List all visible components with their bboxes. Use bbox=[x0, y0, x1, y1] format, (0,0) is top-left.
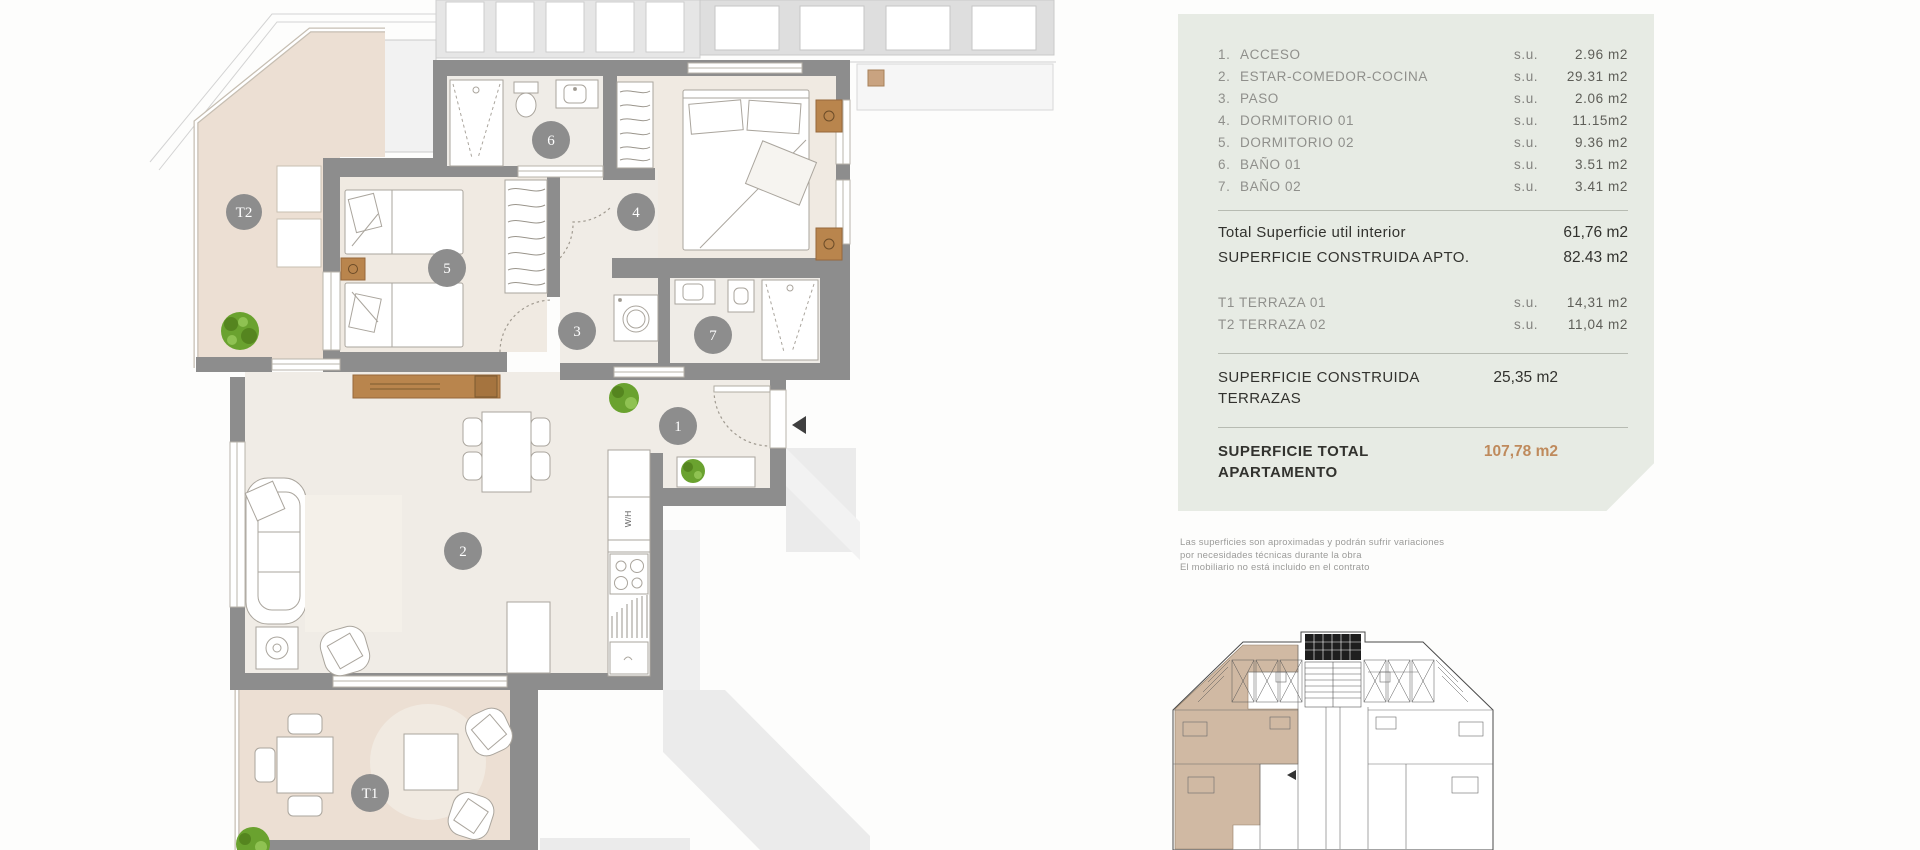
room-label: DORMITORIO 02 bbox=[1240, 135, 1514, 150]
total-util-value: 61,76 m2 bbox=[1518, 224, 1628, 242]
single-bed bbox=[345, 283, 463, 347]
plant bbox=[681, 459, 705, 483]
svg-text:3: 3 bbox=[573, 324, 581, 340]
room-area-row: 2. ESTAR-COMEDOR-COCINA s.u. 29.31 m2 bbox=[1218, 69, 1628, 91]
panel-divider bbox=[1218, 353, 1628, 354]
svg-text:4: 4 bbox=[632, 205, 640, 221]
room-number: 6. bbox=[1218, 157, 1240, 172]
disclaimer-text: Las superficies son aproximadas y podrán… bbox=[1180, 537, 1444, 575]
room-number: 4. bbox=[1218, 113, 1240, 128]
floorplan-sheet: { "panel": { "rooms": [ {"num":"1.","lab… bbox=[0, 0, 1920, 850]
svg-text:2: 2 bbox=[459, 544, 467, 560]
total-apartamento-value: 107,78 m2 bbox=[1448, 443, 1558, 461]
room-marker-t1: T1 bbox=[351, 774, 389, 812]
room-area-value: 2.06 m2 bbox=[1548, 91, 1628, 106]
disclaimer-line: por necesidades técnicas durante la obra bbox=[1180, 550, 1444, 563]
construida-terrazas-row: SUPERFICIE CONSTRUIDA TERRAZAS 25,35 m2 bbox=[1218, 367, 1628, 409]
room-area-row: 5. DORMITORIO 02 s.u. 9.36 m2 bbox=[1218, 135, 1628, 157]
construida-apto-value: 82.43 m2 bbox=[1518, 249, 1628, 267]
panel-divider bbox=[1218, 210, 1628, 211]
room-marker-7: 7 bbox=[694, 316, 732, 354]
keyplan-stairs bbox=[1305, 662, 1361, 707]
room-area-row: 6. BAÑO 01 s.u. 3.51 m2 bbox=[1218, 157, 1628, 179]
dining-table bbox=[463, 412, 550, 492]
room-label: ESTAR-COMEDOR-COCINA bbox=[1240, 69, 1514, 84]
kitchen-counter bbox=[608, 450, 650, 676]
room-marker-4: 4 bbox=[617, 193, 655, 231]
room-marker-3: 3 bbox=[558, 312, 596, 350]
room-label: BAÑO 01 bbox=[1240, 157, 1514, 172]
entry-door-leaf bbox=[714, 386, 770, 392]
room-label: ACCESO bbox=[1240, 47, 1514, 62]
double-bed bbox=[683, 90, 817, 250]
room-number: 2. bbox=[1218, 69, 1240, 84]
entry-arrow-marker bbox=[792, 416, 806, 434]
terraza-list: T1 TERRAZA 01 s.u. 14,31 m2 T2 TERRAZA 0… bbox=[1218, 295, 1628, 339]
total-apartamento-row: SUPERFICIE TOTAL APARTAMENTO 107,78 m2 bbox=[1218, 441, 1628, 483]
wardrobe bbox=[617, 82, 653, 168]
terraza-label: T1 TERRAZA 01 bbox=[1218, 295, 1514, 310]
toilet bbox=[728, 280, 754, 312]
total-apartamento-label: SUPERFICIE TOTAL APARTAMENTO bbox=[1218, 441, 1448, 483]
su-label: s.u. bbox=[1514, 47, 1548, 62]
room-area-row: 4. DORMITORIO 01 s.u. 11.15m2 bbox=[1218, 113, 1628, 135]
room-area-value: 29.31 m2 bbox=[1548, 69, 1628, 84]
room-marker-t2: T2 bbox=[226, 194, 262, 230]
sofa bbox=[245, 478, 306, 624]
room-list: 1. ACCESO s.u. 2.96 m2 2. ESTAR-COMEDOR-… bbox=[1218, 47, 1628, 201]
floor-lamp bbox=[256, 627, 298, 669]
floorplan-drawing: T2 5 6 4 3 7 1 2 T1 W/H bbox=[0, 0, 1100, 850]
plant bbox=[609, 383, 639, 413]
room-area-value: 9.36 m2 bbox=[1548, 135, 1628, 150]
construida-terrazas-value: 25,35 m2 bbox=[1448, 369, 1558, 387]
terraza-label: T2 TERRAZA 02 bbox=[1218, 317, 1514, 332]
washing-machine bbox=[614, 295, 658, 341]
total-util-row: Total Superficie util interior 61,76 m2 bbox=[1218, 224, 1628, 242]
sink bbox=[556, 80, 598, 108]
room-marker-5: 5 bbox=[428, 249, 466, 287]
su-label: s.u. bbox=[1514, 317, 1548, 332]
room-marker-6: 6 bbox=[532, 121, 570, 159]
rug bbox=[305, 495, 402, 632]
kitchen-wh-label: W/H bbox=[623, 511, 633, 528]
su-label: s.u. bbox=[1514, 69, 1548, 84]
shower bbox=[450, 80, 503, 166]
keyplan-elevator-core bbox=[1305, 634, 1361, 660]
toilet bbox=[514, 82, 538, 117]
disclaimer-line: El mobiliario no está incluido en el con… bbox=[1180, 562, 1444, 575]
room-label: DORMITORIO 01 bbox=[1240, 113, 1514, 128]
nightstand bbox=[341, 258, 365, 280]
disclaimer-line: Las superficies son aproximadas y podrán… bbox=[1180, 537, 1444, 550]
total-util-label: Total Superficie util interior bbox=[1218, 224, 1518, 241]
svg-text:6: 6 bbox=[547, 133, 555, 149]
planter bbox=[277, 219, 321, 267]
construida-apto-row: SUPERFICIE CONSTRUIDA APTO. 82.43 m2 bbox=[1218, 249, 1628, 267]
room-area-value: 11.15m2 bbox=[1548, 113, 1628, 128]
room-area-value: 2.96 m2 bbox=[1548, 47, 1628, 62]
room-number: 7. bbox=[1218, 179, 1240, 194]
room-label: BAÑO 02 bbox=[1240, 179, 1514, 194]
svg-text:5: 5 bbox=[443, 261, 451, 277]
su-label: s.u. bbox=[1514, 295, 1548, 310]
construida-terrazas-label: SUPERFICIE CONSTRUIDA TERRAZAS bbox=[1218, 367, 1448, 409]
planter bbox=[277, 166, 321, 212]
area-summary-panel: 1. ACCESO s.u. 2.96 m2 2. ESTAR-COMEDOR-… bbox=[1178, 14, 1654, 511]
single-bed bbox=[345, 190, 463, 254]
su-label: s.u. bbox=[1514, 157, 1548, 172]
su-label: s.u. bbox=[1514, 135, 1548, 150]
construida-apto-label: SUPERFICIE CONSTRUIDA APTO. bbox=[1218, 249, 1518, 266]
terraza-row: T1 TERRAZA 01 s.u. 14,31 m2 bbox=[1218, 295, 1628, 317]
plant bbox=[221, 312, 259, 350]
building-key-plan bbox=[1148, 612, 1552, 850]
terraza-value: 11,04 m2 bbox=[1548, 317, 1628, 332]
su-label: s.u. bbox=[1514, 91, 1548, 106]
svg-text:7: 7 bbox=[709, 328, 717, 344]
room-area-row: 1. ACCESO s.u. 2.96 m2 bbox=[1218, 47, 1628, 69]
room-area-value: 3.51 m2 bbox=[1548, 157, 1628, 172]
room-number: 3. bbox=[1218, 91, 1240, 106]
coffee-table bbox=[404, 734, 458, 790]
room-number: 5. bbox=[1218, 135, 1240, 150]
apartment-floorplan: T2 5 6 4 3 7 1 2 T1 W/H bbox=[0, 0, 1100, 850]
nightstand bbox=[816, 228, 842, 260]
room-area-value: 3.41 m2 bbox=[1548, 179, 1628, 194]
tv-console bbox=[353, 375, 500, 398]
svg-text:1: 1 bbox=[674, 419, 682, 435]
shower bbox=[762, 280, 818, 360]
room-area-row: 3. PASO s.u. 2.06 m2 bbox=[1218, 91, 1628, 113]
terraza-row: T2 TERRAZA 02 s.u. 11,04 m2 bbox=[1218, 317, 1628, 339]
sink bbox=[675, 280, 715, 304]
sideboard bbox=[507, 602, 550, 673]
wardrobe bbox=[505, 180, 547, 293]
panel-divider bbox=[1218, 427, 1628, 428]
su-label: s.u. bbox=[1514, 179, 1548, 194]
room-label: PASO bbox=[1240, 91, 1514, 106]
terraza-value: 14,31 m2 bbox=[1548, 295, 1628, 310]
su-label: s.u. bbox=[1514, 113, 1548, 128]
svg-text:T1: T1 bbox=[362, 786, 379, 802]
room-marker-1: 1 bbox=[659, 407, 697, 445]
room-marker-2: 2 bbox=[444, 532, 482, 570]
room-number: 1. bbox=[1218, 47, 1240, 62]
svg-text:T2: T2 bbox=[236, 205, 253, 221]
room-area-row: 7. BAÑO 02 s.u. 3.41 m2 bbox=[1218, 179, 1628, 201]
nightstand bbox=[816, 100, 842, 132]
